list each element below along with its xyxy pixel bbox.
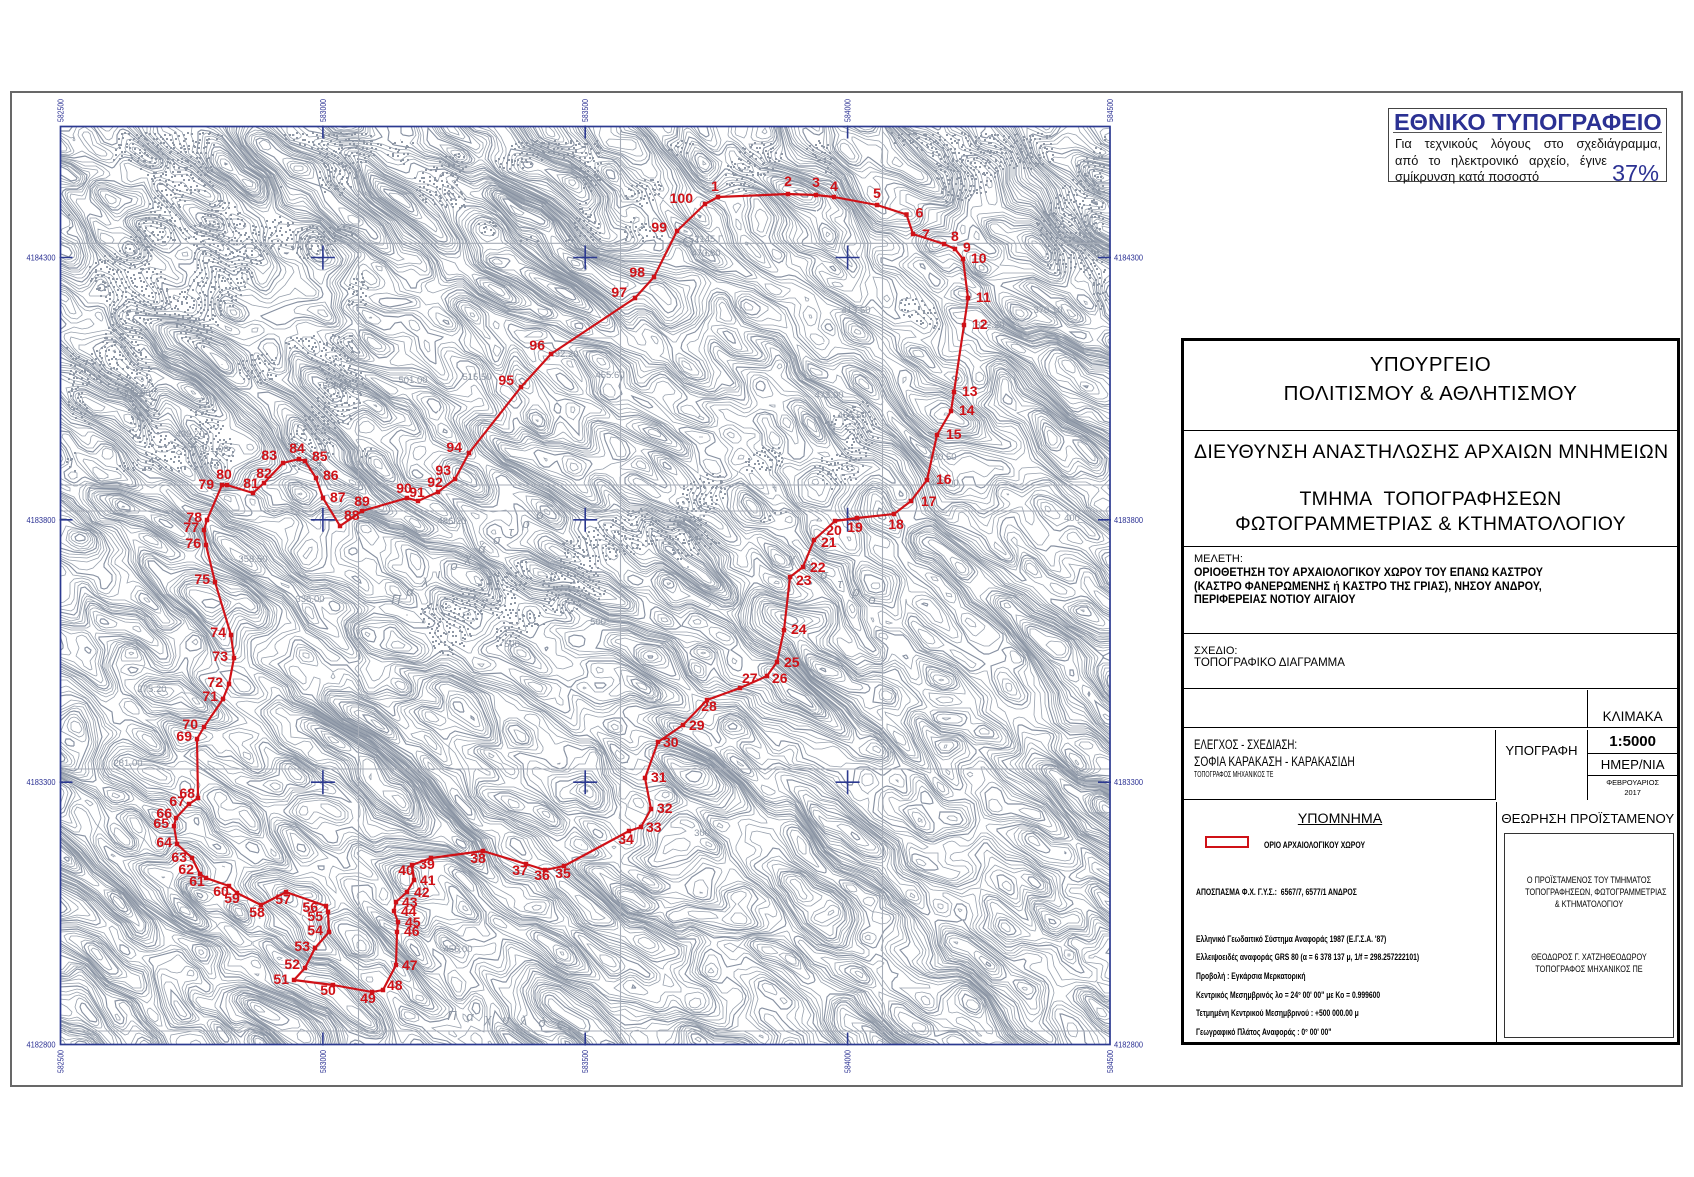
svg-text:96: 96	[529, 337, 545, 353]
svg-text:14: 14	[959, 402, 975, 418]
svg-text:12: 12	[972, 316, 988, 332]
svg-text:63: 63	[171, 849, 187, 865]
svg-text:583000: 583000	[319, 1050, 328, 1073]
svg-text:75: 75	[194, 571, 210, 587]
svg-text:413.50: 413.50	[841, 305, 870, 316]
svg-text:28: 28	[701, 698, 717, 714]
svg-text:3: 3	[812, 174, 820, 190]
svg-text:74: 74	[210, 624, 226, 640]
svg-text:473.00: 473.00	[814, 390, 843, 401]
svg-text:4184300: 4184300	[1114, 254, 1143, 263]
svg-text:300: 300	[694, 828, 710, 839]
svg-text:4183800: 4183800	[1114, 516, 1143, 525]
svg-text:4182800: 4182800	[27, 1041, 56, 1050]
svg-text:79: 79	[198, 476, 214, 492]
svg-text:4183300: 4183300	[1114, 778, 1143, 787]
svg-text:α: α	[466, 1009, 474, 1024]
svg-text:82: 82	[256, 465, 272, 481]
svg-text:9: 9	[963, 239, 971, 255]
svg-text:400: 400	[1064, 513, 1080, 524]
svg-text:37: 37	[512, 862, 528, 878]
svg-text:13: 13	[962, 383, 978, 399]
svg-text:301.00: 301.00	[199, 444, 228, 455]
svg-text:68: 68	[179, 785, 195, 801]
svg-text:40: 40	[398, 862, 414, 878]
svg-text:84: 84	[289, 440, 305, 456]
svg-text:ο: ο	[536, 507, 543, 522]
svg-text:52145 Γ: 52145 Γ	[689, 234, 723, 245]
svg-text:97: 97	[611, 284, 627, 300]
svg-text:26: 26	[772, 670, 788, 686]
svg-text:305.00: 305.00	[121, 388, 150, 399]
svg-text:17: 17	[921, 493, 937, 509]
svg-text:100: 100	[670, 190, 694, 206]
svg-text:93: 93	[435, 462, 451, 478]
svg-text:35: 35	[555, 865, 571, 881]
svg-text:χ: χ	[483, 1011, 492, 1026]
svg-text:486.20: 486.20	[437, 516, 466, 527]
svg-text:95: 95	[498, 372, 514, 388]
svg-text:70: 70	[182, 716, 198, 732]
svg-text:4: 4	[830, 178, 838, 194]
svg-text:500: 500	[590, 617, 606, 628]
svg-text:58: 58	[249, 904, 265, 920]
svg-text:499.20: 499.20	[175, 429, 204, 440]
svg-text:86: 86	[323, 467, 339, 483]
svg-text:λ: λ	[421, 575, 428, 590]
svg-text:15: 15	[946, 426, 962, 442]
svg-text:71: 71	[202, 688, 218, 704]
svg-text:2: 2	[784, 173, 792, 189]
svg-text:584500: 584500	[1106, 99, 1115, 122]
svg-text:83: 83	[261, 447, 277, 463]
svg-text:456.00: 456.00	[443, 944, 472, 955]
svg-text:6: 6	[916, 205, 924, 221]
svg-text:583500: 583500	[581, 1050, 590, 1073]
svg-text:57: 57	[275, 891, 291, 907]
svg-text:370.10: 370.10	[1033, 305, 1062, 316]
svg-text:32: 32	[657, 800, 673, 816]
svg-text:24: 24	[791, 621, 807, 637]
svg-text:36: 36	[534, 867, 550, 883]
svg-text:584500: 584500	[1106, 1050, 1115, 1073]
svg-text:χ: χ	[463, 550, 472, 565]
svg-text:30: 30	[663, 734, 679, 750]
svg-text:466.50: 466.50	[837, 410, 866, 421]
svg-text:23: 23	[796, 572, 812, 588]
svg-text:85: 85	[312, 448, 328, 464]
svg-text:89: 89	[354, 493, 370, 509]
svg-text:48: 48	[387, 977, 403, 993]
svg-text:39: 39	[419, 856, 435, 872]
svg-text:10: 10	[971, 250, 987, 266]
svg-text:ρ: ρ	[521, 516, 530, 531]
svg-text:Π: Π	[447, 1008, 457, 1023]
svg-text:76: 76	[185, 535, 201, 551]
svg-text:19: 19	[847, 519, 863, 535]
svg-text:18: 18	[888, 516, 904, 532]
svg-text:515.50: 515.50	[462, 372, 491, 383]
svg-text:583500: 583500	[581, 99, 590, 122]
svg-text:25: 25	[784, 654, 800, 670]
svg-text:47: 47	[402, 957, 418, 973]
svg-text:584000: 584000	[844, 99, 853, 122]
svg-text:4182800: 4182800	[1114, 1041, 1143, 1050]
svg-text:7: 7	[922, 226, 930, 242]
svg-text:ό: ό	[538, 1015, 545, 1030]
svg-text:53: 53	[294, 938, 310, 954]
svg-text:38: 38	[470, 850, 486, 866]
svg-text:80: 80	[216, 466, 232, 482]
svg-text:50: 50	[320, 982, 336, 998]
svg-text:500: 500	[504, 639, 520, 650]
svg-text:88: 88	[344, 507, 360, 523]
svg-text:τ: τ	[838, 576, 844, 591]
svg-text:34: 34	[618, 831, 634, 847]
svg-text:4183800: 4183800	[27, 516, 56, 525]
svg-text:27: 27	[742, 670, 758, 686]
svg-text:275.20: 275.20	[137, 684, 166, 695]
svg-text:31: 31	[651, 769, 667, 785]
svg-text:α: α	[406, 584, 414, 599]
svg-text:11: 11	[976, 289, 991, 305]
svg-text:ο: ο	[450, 558, 457, 573]
svg-text:455.60: 455.60	[595, 370, 624, 381]
svg-text:ρ: ρ	[851, 584, 860, 599]
svg-text:29: 29	[689, 717, 705, 733]
svg-text:χ: χ	[787, 551, 796, 566]
svg-text:73: 73	[212, 648, 228, 664]
svg-text:4184300: 4184300	[27, 254, 56, 263]
svg-text:1: 1	[711, 178, 719, 194]
svg-text:16: 16	[936, 471, 952, 487]
svg-text:501.00: 501.00	[398, 375, 427, 386]
svg-text:46: 46	[404, 923, 420, 939]
svg-text:22: 22	[810, 559, 826, 575]
svg-text:72: 72	[207, 674, 223, 690]
svg-text:ά: ά	[478, 541, 486, 556]
svg-text:281.00: 281.00	[113, 758, 142, 769]
svg-text:336.00: 336.00	[295, 594, 324, 605]
svg-text:21: 21	[821, 534, 837, 550]
svg-text:358.50: 358.50	[238, 554, 267, 565]
svg-text:470.80: 470.80	[691, 248, 720, 259]
svg-text:91: 91	[409, 484, 425, 500]
svg-text:4183300: 4183300	[27, 778, 56, 787]
svg-text:78: 78	[186, 509, 202, 525]
svg-text:ο: ο	[868, 592, 875, 607]
svg-text:33: 33	[646, 819, 662, 835]
svg-text:56: 56	[302, 899, 318, 915]
svg-text:582500: 582500	[57, 1050, 66, 1073]
svg-text:52: 52	[284, 956, 300, 972]
svg-text:87: 87	[330, 489, 346, 505]
svg-text:ι: ι	[438, 566, 441, 581]
svg-text:98: 98	[629, 264, 645, 280]
svg-text:υ: υ	[502, 1012, 509, 1027]
svg-text:λ: λ	[520, 1013, 527, 1028]
svg-text:σ: σ	[493, 532, 502, 547]
svg-text:60: 60	[213, 883, 229, 899]
svg-text:584000: 584000	[844, 1050, 853, 1073]
svg-text:582500: 582500	[57, 99, 66, 122]
svg-text:ς: ς	[557, 1016, 564, 1031]
svg-text:64: 64	[156, 834, 172, 850]
svg-text:94: 94	[446, 439, 462, 455]
svg-text:49: 49	[360, 990, 376, 1006]
svg-text:583000: 583000	[319, 99, 328, 122]
svg-text:Π: Π	[391, 592, 401, 607]
svg-text:8: 8	[951, 228, 959, 244]
svg-text:99: 99	[651, 219, 667, 235]
svg-text:54: 54	[307, 922, 323, 938]
svg-text:492.20: 492.20	[549, 349, 578, 360]
svg-text:51: 51	[273, 971, 289, 987]
svg-text:509.60: 509.60	[322, 381, 351, 392]
svg-text:5: 5	[873, 185, 881, 201]
